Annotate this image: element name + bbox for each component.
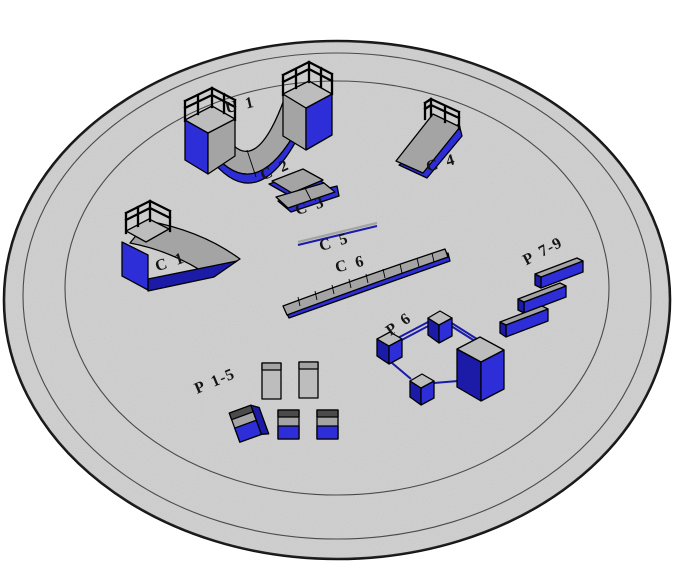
p15-panel-2: [299, 362, 318, 398]
obstacle-c1-quarterpipe[interactable]: [122, 201, 240, 291]
obstacle-u1-halfpipe[interactable]: [185, 62, 332, 183]
obstacle-p15-panels-boxes[interactable]: [229, 362, 338, 444]
c6-top: [283, 249, 448, 315]
skatepark-layout-scene: U 1 C 1 C 2 C 3 C 4 C 5 C 6 P 1-5 P 6 P …: [0, 0, 680, 579]
c1-front-face: [122, 242, 148, 290]
p15-panel-1: [262, 363, 281, 399]
p15-box-2: [278, 410, 299, 439]
p15-box-3: [317, 410, 338, 439]
p6-box-b: [428, 311, 452, 343]
obstacle-c6-curved-ledge[interactable]: [283, 249, 450, 318]
p6-box-d-large: [457, 337, 504, 401]
obstacles-layer: [0, 0, 680, 579]
obstacle-p79-ledges[interactable]: [500, 258, 583, 337]
p6-box-c: [410, 374, 434, 405]
p15-box-1: [229, 403, 268, 444]
p6-box-a: [377, 332, 402, 364]
